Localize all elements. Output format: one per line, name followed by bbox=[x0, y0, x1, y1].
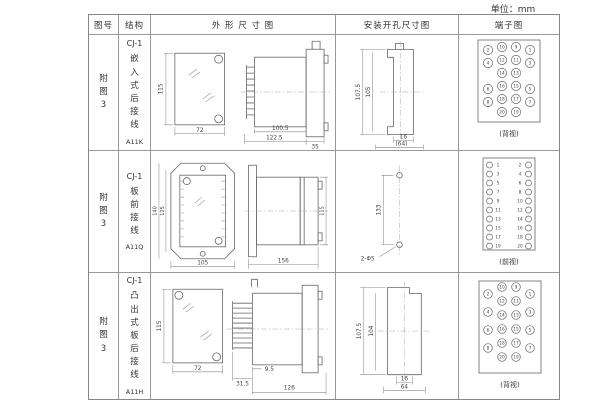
terminal-number: 5 bbox=[529, 328, 532, 334]
dim-front-width: 72 bbox=[196, 127, 204, 133]
header-mounting: 安装开孔尺寸图 bbox=[336, 15, 459, 35]
figure-cell: 附图3 bbox=[89, 273, 119, 399]
terminal-number: 13 bbox=[513, 70, 519, 76]
terminal-number: 1 bbox=[529, 47, 532, 53]
terminal-number: 12 bbox=[499, 299, 505, 305]
table-row-a11q: 附图3 CJ-1 板前接线 A11Q 140 125 105 bbox=[89, 151, 559, 273]
dim-plate-inner-h: 125 bbox=[160, 206, 166, 215]
dim-front-height: 115 bbox=[157, 320, 163, 331]
structure-cell: CJ-1 凸出式板后接线 A11H bbox=[119, 273, 151, 399]
terminal-number: 8 bbox=[487, 99, 490, 105]
header-outline: 外 形 尺 寸 图 bbox=[151, 15, 336, 35]
mounting-drawing-a11h: 107.5 104 16 64 bbox=[336, 273, 458, 399]
terminal-number: 17 bbox=[495, 234, 501, 240]
figure-cell: 附图3 bbox=[89, 35, 119, 151]
dim-cutout-overall-w: 64 bbox=[401, 385, 409, 391]
terminal-number: 16 bbox=[499, 83, 505, 89]
structure-desc: 嵌入式后接线 bbox=[128, 53, 141, 132]
structure-code: A11K bbox=[126, 138, 143, 146]
terminal-number: 2 bbox=[487, 47, 490, 53]
terminal-number: 1 bbox=[497, 162, 500, 168]
dim-plate-width: 105 bbox=[197, 260, 208, 266]
terminal-number: 17 bbox=[513, 341, 519, 347]
terminal-number: 8 bbox=[487, 346, 490, 352]
terminal-number: 17 bbox=[513, 96, 519, 102]
terminal-number: 18 bbox=[517, 234, 523, 240]
terminal-number: 7 bbox=[497, 189, 500, 195]
model-label: CJ-1 bbox=[127, 276, 143, 285]
table-row-a11k: 附图3 CJ-1 嵌入式后接线 A11K 115 72 bbox=[89, 35, 559, 151]
mounting-holes-label: 2-Φ5 bbox=[361, 256, 375, 262]
dim-cutout-outer-h: 107.5 bbox=[357, 322, 363, 339]
mounting-drawing-a11k: 107.5 105 16 (64) bbox=[336, 35, 458, 151]
mounting-cell: 133 2-Φ5 bbox=[336, 151, 459, 273]
terminal-number: 9 bbox=[497, 198, 500, 204]
dim-cutout-inner-h: 104 bbox=[369, 325, 375, 336]
terminal-number: 20 bbox=[499, 355, 505, 361]
terminal-number: 11 bbox=[513, 57, 519, 63]
outline-drawing-a11k: 115 72 100.5 122.5 35 bbox=[151, 35, 335, 151]
dim-cutout-outer-h: 107.5 bbox=[356, 83, 362, 100]
terminal-number: 3 bbox=[529, 60, 532, 66]
mounting-cell: 107.5 104 16 64 bbox=[336, 273, 459, 399]
terminal-number: 9 bbox=[515, 285, 518, 291]
terminal-number: 2 bbox=[487, 292, 490, 298]
table-row-a11h: 附图3 CJ-1 凸出式板后接线 A11H 115 72 bbox=[89, 273, 559, 399]
terminal-number: 20 bbox=[517, 243, 523, 249]
dim-hole-span: 133 bbox=[377, 204, 383, 215]
terminal-view-caption: (前视) bbox=[499, 257, 519, 266]
terminal-number: 16 bbox=[517, 225, 523, 231]
terminal-number: 10 bbox=[499, 44, 505, 50]
terminal-number: 9 bbox=[515, 44, 518, 50]
terminal-number: 8 bbox=[519, 189, 522, 195]
terminal-number: 5 bbox=[529, 86, 532, 92]
spec-table: 图号 结构 外 形 尺 寸 图 安装开孔尺寸图 端子图 附图3 CJ-1 嵌入式… bbox=[88, 14, 560, 400]
outline-drawing-a11h: 115 72 31.5 9.5 126 bbox=[151, 273, 335, 399]
terminal-number: 4 bbox=[487, 310, 490, 316]
structure-desc: 凸出式板后接线 bbox=[128, 290, 141, 382]
model-label: CJ-1 bbox=[127, 39, 143, 48]
outline-cell: 140 125 105 156 115 bbox=[151, 151, 336, 273]
terminal-number: 7 bbox=[529, 99, 532, 105]
dim-cutout-overall-w: (64) bbox=[396, 141, 408, 147]
terminal-number: 13 bbox=[495, 216, 501, 222]
terminal-number: 16 bbox=[499, 327, 505, 333]
outline-cell: 115 72 100.5 122.5 35 bbox=[151, 35, 336, 151]
structure-cell: CJ-1 板前接线 A11Q bbox=[119, 151, 151, 273]
terminal-number: 4 bbox=[519, 171, 522, 177]
header-structure: 结构 bbox=[119, 15, 151, 35]
header-figure: 图号 bbox=[89, 15, 119, 35]
dim-side-height: 115 bbox=[320, 206, 326, 215]
terminal-number: 18 bbox=[499, 96, 505, 102]
terminal-number: 15 bbox=[513, 327, 519, 333]
dim-cutout-slot-w: 16 bbox=[401, 377, 409, 383]
dim-body-depth: 100.5 bbox=[272, 125, 289, 131]
terminal-number: 6 bbox=[487, 328, 490, 334]
dim-side-depth: 156 bbox=[278, 258, 289, 264]
model-label: CJ-1 bbox=[127, 172, 143, 181]
structure-desc: 板前接线 bbox=[128, 186, 141, 239]
dim-overall-depth: 126 bbox=[284, 386, 295, 392]
structure-code: A11H bbox=[126, 388, 144, 396]
terminal-number: 7 bbox=[529, 346, 532, 352]
outline-cell: 115 72 31.5 9.5 126 bbox=[151, 273, 336, 399]
terminal-number: 20 bbox=[499, 109, 505, 115]
terminal-number: 15 bbox=[513, 83, 519, 89]
dim-gap-depth: 9.5 bbox=[265, 367, 274, 373]
terminal-number: 6 bbox=[519, 180, 522, 186]
mounting-cell: 107.5 105 16 (64) bbox=[336, 35, 459, 151]
terminal-number: 13 bbox=[513, 313, 519, 319]
terminal-diagram-a11q: 1 3 5 7 9 11 13 15 17 19 2 4 6 8 10 12 1 bbox=[459, 151, 559, 273]
dim-plate-outer-h: 140 bbox=[152, 206, 158, 215]
terminal-number: 15 bbox=[495, 225, 501, 231]
figure-label: 附图3 bbox=[97, 316, 110, 356]
dim-pin-depth: 31.5 bbox=[236, 382, 249, 388]
terminal-number: 3 bbox=[497, 171, 500, 177]
terminal-number: 12 bbox=[517, 207, 523, 213]
table-header-row: 图号 结构 外 形 尺 寸 图 安装开孔尺寸图 端子图 bbox=[89, 15, 559, 35]
terminal-number: 5 bbox=[497, 180, 500, 186]
document-page: 单位：mm 图号 结构 外 形 尺 寸 图 安装开孔尺寸图 端子图 附图3 CJ… bbox=[0, 0, 600, 400]
structure-code: A11Q bbox=[126, 243, 144, 251]
terminal-cell: 2 4 6 8 10 12 14 16 18 20 9 11 13 15 17 … bbox=[459, 273, 559, 399]
terminal-number: 10 bbox=[517, 198, 523, 204]
terminal-cell: 2 4 6 8 10 12 14 16 18 20 9 11 13 15 17 … bbox=[459, 35, 559, 151]
terminal-number: 19 bbox=[513, 109, 519, 115]
header-terminal: 端子图 bbox=[459, 15, 559, 35]
mounting-drawing-a11q: 133 2-Φ5 bbox=[336, 151, 458, 273]
dim-cutout-inner-h: 105 bbox=[366, 86, 372, 97]
terminal-number: 1 bbox=[529, 292, 532, 298]
terminal-number: 19 bbox=[495, 243, 501, 249]
dim-front-width: 72 bbox=[194, 366, 202, 372]
terminal-number: 6 bbox=[487, 86, 490, 92]
structure-cell: CJ-1 嵌入式后接线 A11K bbox=[119, 35, 151, 151]
terminal-number: 14 bbox=[499, 70, 505, 76]
terminal-diagram-a11k: 2 4 6 8 10 12 14 16 18 20 9 11 13 15 17 … bbox=[459, 35, 559, 151]
terminal-number: 14 bbox=[499, 313, 505, 319]
terminal-cell: 1 3 5 7 9 11 13 15 17 19 2 4 6 8 10 12 1 bbox=[459, 151, 559, 273]
figure-cell: 附图3 bbox=[89, 151, 119, 273]
terminal-number: 12 bbox=[499, 57, 505, 63]
figure-label: 附图3 bbox=[97, 192, 110, 232]
terminal-number: 3 bbox=[529, 310, 532, 316]
terminal-number: 2 bbox=[519, 162, 522, 168]
terminal-diagram-a11h: 2 4 6 8 10 12 14 16 18 20 9 11 13 15 17 … bbox=[459, 273, 559, 399]
outline-drawing-a11q: 140 125 105 156 115 bbox=[151, 151, 335, 273]
terminal-number: 4 bbox=[487, 60, 490, 66]
terminal-number: 10 bbox=[499, 285, 505, 291]
terminal-number: 11 bbox=[513, 299, 519, 305]
dim-flange-depth: 35 bbox=[311, 144, 319, 150]
terminal-number: 19 bbox=[513, 355, 519, 361]
dim-cutout-slot-w: 16 bbox=[400, 134, 408, 140]
terminal-number: 11 bbox=[495, 207, 501, 213]
terminal-view-caption: (背视) bbox=[499, 129, 519, 138]
terminal-number: 14 bbox=[517, 216, 523, 222]
terminal-view-caption: (背视) bbox=[500, 380, 520, 389]
figure-label: 附图3 bbox=[97, 73, 110, 113]
dim-overall-depth: 122.5 bbox=[266, 135, 283, 141]
dim-front-height: 115 bbox=[158, 83, 164, 94]
terminal-number: 18 bbox=[499, 341, 505, 347]
